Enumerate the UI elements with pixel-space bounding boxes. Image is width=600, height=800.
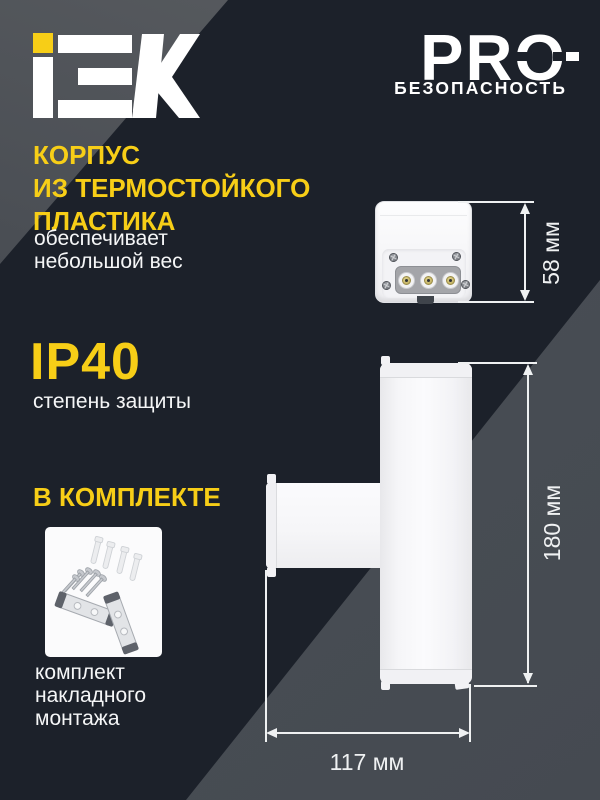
pro-wordmark: PRO БЕЗОПАСНОСТЬ <box>420 25 567 90</box>
mounting-kit-photo <box>45 527 162 657</box>
lamp-body-bottom-endcap <box>380 669 472 684</box>
pro-logo: PRO БЕЗОПАСНОСТЬ <box>420 25 567 90</box>
dim-label-117mm: 117 мм <box>297 750 437 774</box>
feature-plastic-title: КОРПУС ИЗ ТЕРМОСТОЙКОГО ПЛАСТИКА <box>33 139 310 238</box>
terminal-icon <box>398 272 415 289</box>
dimension-arrow-down-icon <box>520 290 530 301</box>
mount-tab <box>267 567 276 577</box>
lamp-body-arm <box>266 483 384 568</box>
ext-line <box>265 570 267 742</box>
din-clip-notch <box>417 296 434 304</box>
pro-o-slit-right <box>553 52 566 61</box>
terminal-icon <box>420 272 437 289</box>
junction-box-lid-seam <box>380 215 467 216</box>
feature-ip40-title: IP40 <box>30 334 141 390</box>
feature-kit-title: В КОМПЛЕКТЕ <box>33 481 221 514</box>
terminal-strip <box>395 266 461 294</box>
terminal-icon <box>442 272 459 289</box>
feature-ip40-desc: степень защиты <box>33 390 191 413</box>
junction-box-photo <box>375 201 472 303</box>
dim-label-58mm: 58 мм <box>539 208 563 298</box>
feature-plastic-title-line2: ИЗ ТЕРМОСТОЙКОГО <box>33 172 310 205</box>
iek-logo <box>30 30 205 122</box>
dimension-arrow-up-icon <box>520 203 530 214</box>
pro-o-slit-left <box>513 52 531 61</box>
feature-plastic-title-line1: КОРПУС <box>33 139 310 172</box>
lamp-body-bar <box>380 363 472 683</box>
dim-label-180mm: 180 мм <box>540 473 564 573</box>
screws-anchors-brackets-icon <box>45 527 162 657</box>
dim-line-180 <box>527 366 529 683</box>
feature-kit-desc: комплект накладного монтажа <box>35 661 146 730</box>
dim-line-58 <box>524 205 526 299</box>
pro-o-dash <box>566 52 579 61</box>
product-promo-image: PRO БЕЗОПАСНОСТЬ КОРПУС ИЗ ТЕРМОСТОЙКОГО… <box>0 0 600 800</box>
dim-line-117 <box>270 732 466 734</box>
dimension-arrow-up-icon <box>523 364 533 375</box>
lamp-body-top-endcap <box>380 363 472 378</box>
pro-subtitle: БЕЗОПАСНОСТЬ <box>394 80 567 98</box>
lamp-body-arm-endcap <box>266 483 277 568</box>
dimension-arrow-left-icon <box>266 728 277 738</box>
dimension-arrow-right-icon <box>459 728 470 738</box>
iek-logo-yellow-dot <box>33 33 53 53</box>
dimension-arrow-down-icon <box>523 673 533 684</box>
feature-plastic-desc: обеспечивает небольшой вес <box>34 227 183 273</box>
ext-line <box>474 685 537 687</box>
ext-line <box>458 301 534 303</box>
